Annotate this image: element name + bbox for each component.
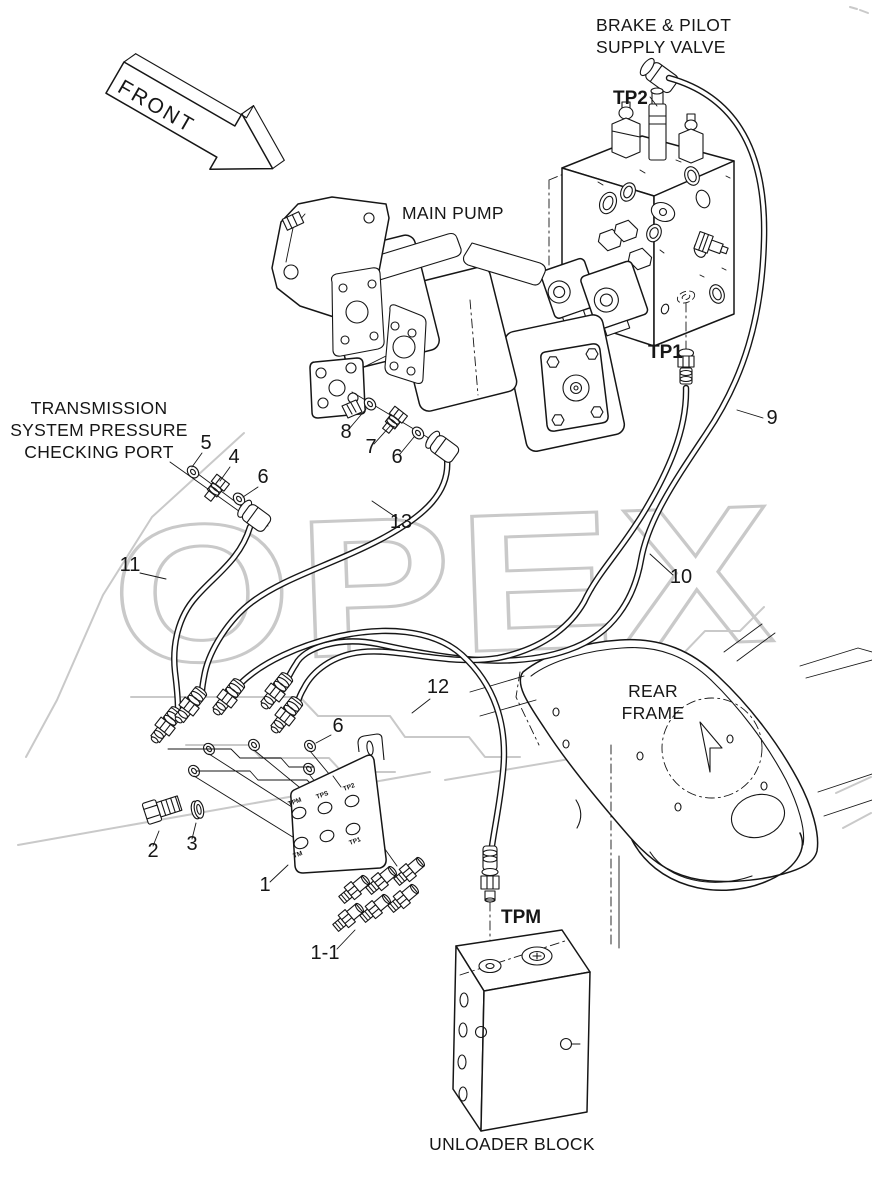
callout-6b: 6 xyxy=(391,446,402,468)
callout-13: 13 xyxy=(390,511,412,533)
label-rear-frame-line1: REAR xyxy=(628,681,678,701)
piping-diagram: OPEX FRONT xyxy=(0,0,872,1178)
parts-diagram-page: OPEX FRONT xyxy=(0,0,872,1178)
callout-6c: 6 xyxy=(332,715,343,737)
callout-4: 4 xyxy=(228,446,239,468)
callout-9: 9 xyxy=(766,407,777,429)
label-unloader-block: UNLOADER BLOCK xyxy=(429,1134,595,1154)
unloader-block-drawing: UNLOADER BLOCK xyxy=(429,930,595,1154)
bracket-plate-drawing: TPM TPS TP2 TM TP1 xyxy=(287,734,386,873)
callout-1-1: 1-1 xyxy=(311,942,340,964)
callout-6a: 6 xyxy=(257,466,268,488)
rear-frame-drawing: REAR FRAME xyxy=(470,624,872,948)
solenoid-1 xyxy=(612,102,640,158)
label-rear-frame-line2: FRAME xyxy=(622,703,685,723)
callout-1: 1 xyxy=(259,874,270,896)
label-main-pump: MAIN PUMP xyxy=(402,203,504,223)
callout-7: 7 xyxy=(365,436,376,458)
pump-small-flange xyxy=(310,358,365,418)
label-transmission-line1: TRANSMISSION xyxy=(31,398,168,418)
label-transmission-line3: CHECKING PORT xyxy=(24,442,173,462)
label-transmission-line2: SYSTEM PRESSURE xyxy=(10,420,188,440)
callout-11: 11 xyxy=(120,554,141,576)
solenoid-2 xyxy=(679,114,703,163)
port-label-tp1: TP1 xyxy=(648,342,683,363)
label-brake-pilot-line2: SUPPLY VALVE xyxy=(596,37,726,57)
callout-12: 12 xyxy=(427,676,449,698)
callout-5: 5 xyxy=(200,432,211,454)
label-brake-pilot-line1: BRAKE & PILOT xyxy=(596,15,731,35)
port-label-tpm: TPM xyxy=(501,907,541,928)
tp2-fitting xyxy=(649,92,666,160)
port-label-tp2: TP2 xyxy=(613,88,648,109)
front-arrow: FRONT xyxy=(99,39,300,200)
callout-2: 2 xyxy=(147,840,158,862)
gear-pump-face xyxy=(541,344,608,431)
callout-8: 8 xyxy=(340,421,351,443)
callout-3: 3 xyxy=(186,833,197,855)
callout-10: 10 xyxy=(670,566,692,588)
washer-3 xyxy=(190,800,205,820)
